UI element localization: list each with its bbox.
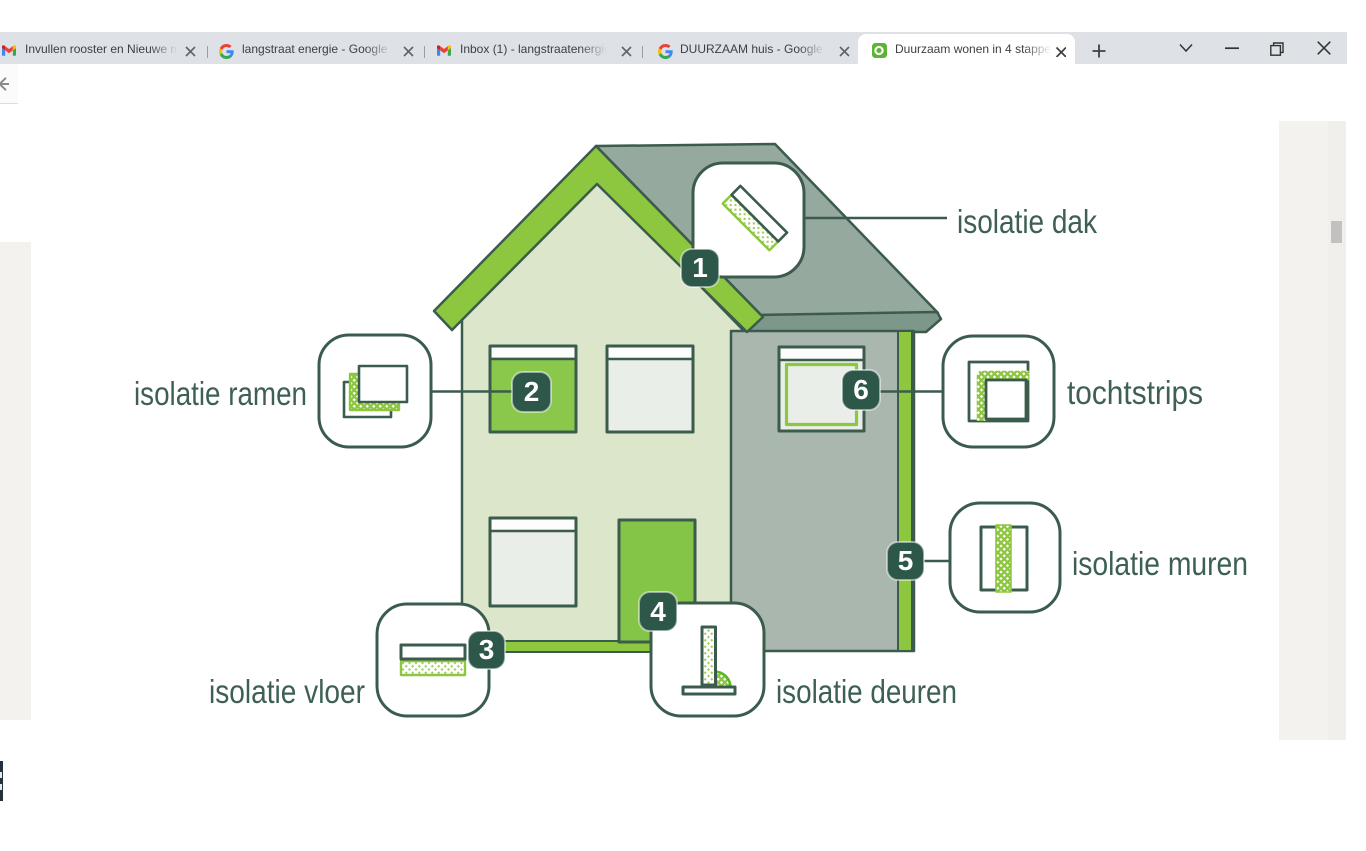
svg-text:isolatie ramen: isolatie ramen	[134, 375, 307, 412]
svg-text:2: 2	[524, 376, 540, 407]
svg-text:4: 4	[650, 596, 666, 627]
svg-text:isolatie muren: isolatie muren	[1072, 545, 1248, 582]
svg-text:isolatie vloer: isolatie vloer	[209, 673, 365, 710]
svg-text:1: 1	[692, 252, 708, 283]
svg-text:5: 5	[898, 545, 914, 576]
svg-text:isolatie deuren: isolatie deuren	[776, 673, 957, 710]
svg-text:tochtstrips: tochtstrips	[1067, 374, 1203, 411]
svg-text:6: 6	[853, 374, 869, 405]
svg-text:isolatie dak: isolatie dak	[957, 203, 1097, 240]
svg-text:3: 3	[479, 634, 495, 665]
